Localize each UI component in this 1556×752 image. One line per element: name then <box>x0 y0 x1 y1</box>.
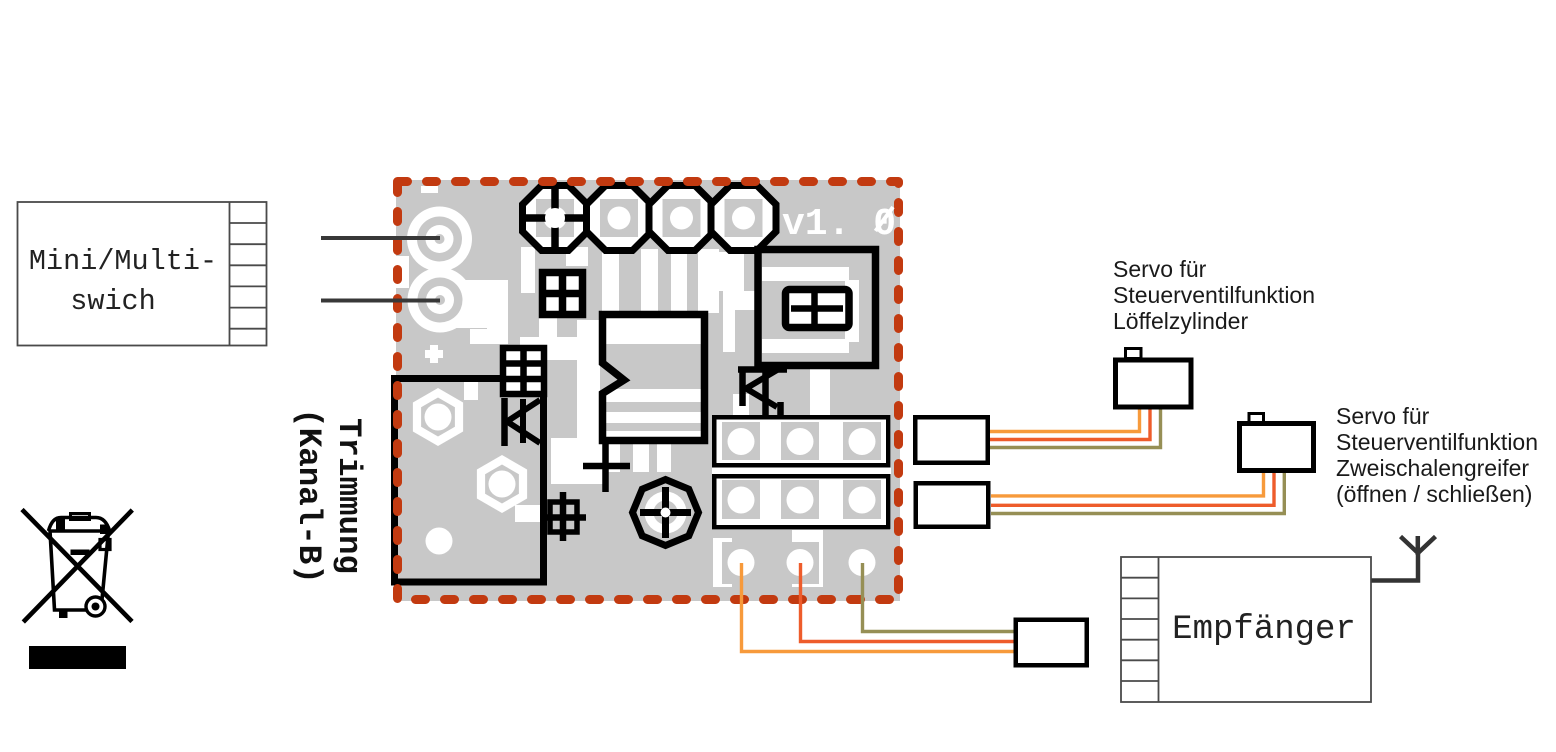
svg-text:(öffnen / schließen): (öffnen / schließen) <box>1336 481 1532 507</box>
svg-text:Trimmung: Trimmung <box>330 418 367 574</box>
svg-text:(Kanal-B): (Kanal-B) <box>290 408 327 584</box>
svg-text:Empfänger: Empfänger <box>1172 611 1356 649</box>
svg-text:Steuerventilfunktion: Steuerventilfunktion <box>1113 282 1315 308</box>
svg-text:Zweischalengreifer: Zweischalengreifer <box>1336 455 1529 481</box>
svg-text:Servo für: Servo für <box>1336 403 1430 429</box>
svg-text:Mini/Multi-: Mini/Multi- <box>29 245 217 278</box>
svg-text:Steuerventilfunktion: Steuerventilfunktion <box>1336 429 1538 455</box>
svg-text:Löffelzylinder: Löffelzylinder <box>1113 308 1248 334</box>
svg-text:Servo für: Servo für <box>1113 256 1207 282</box>
svg-text:swich: swich <box>70 285 156 318</box>
